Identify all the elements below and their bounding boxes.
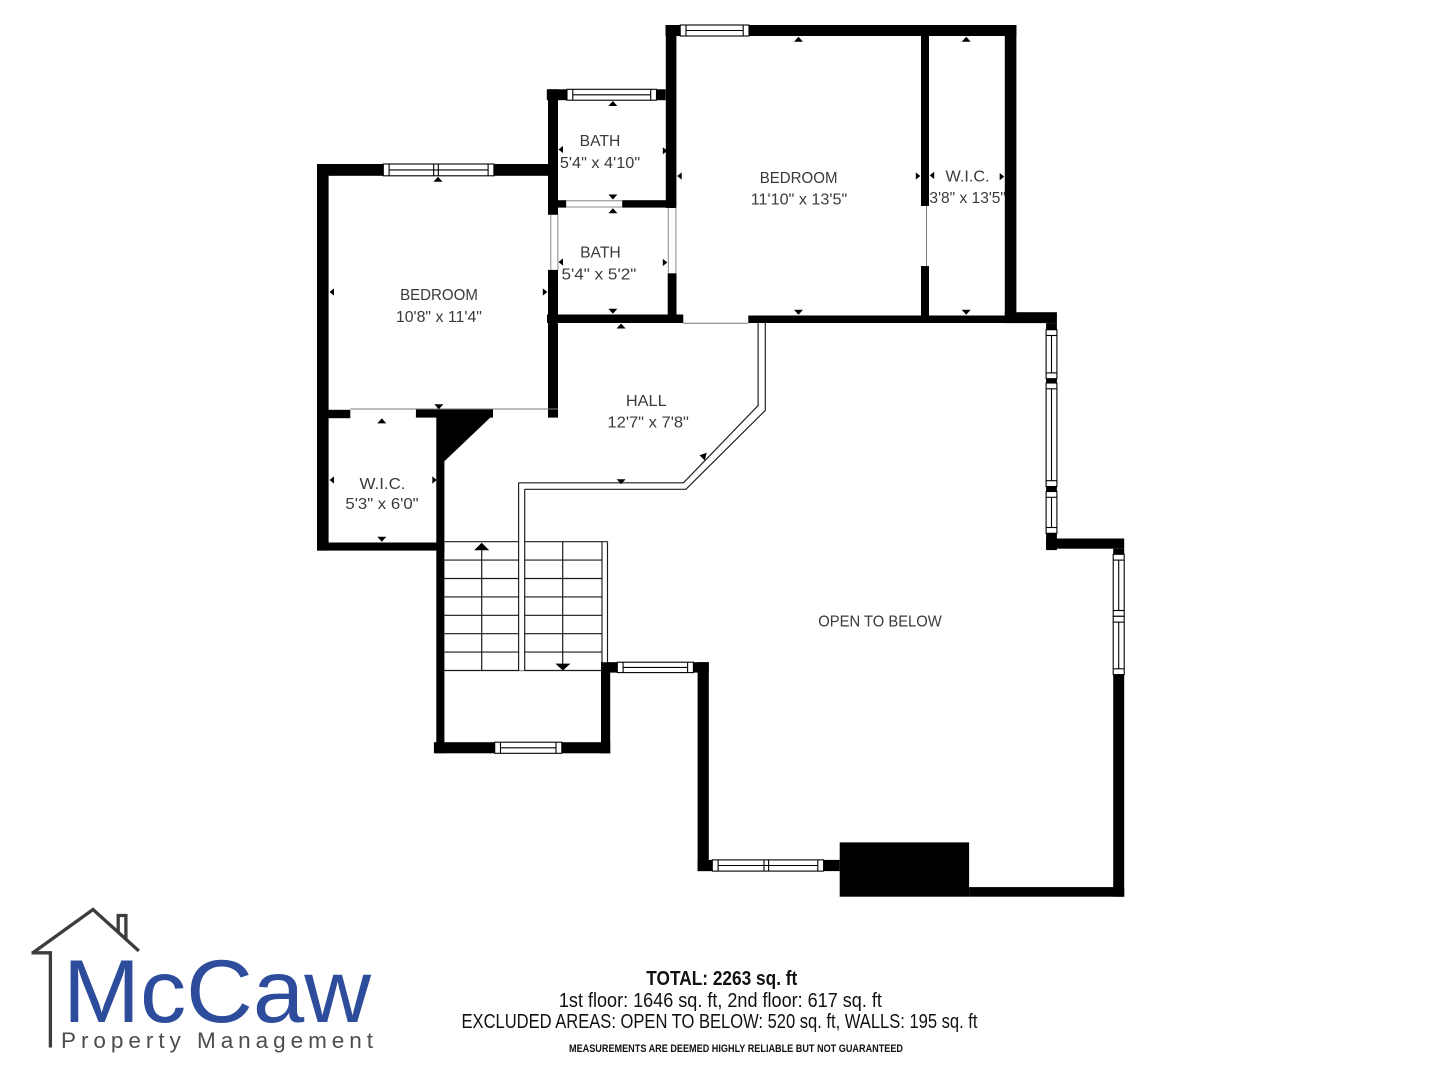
svg-text:McCaw: McCaw: [63, 941, 372, 1041]
svg-text:BATH: BATH: [580, 133, 621, 150]
svg-text:BEDROOM: BEDROOM: [400, 287, 478, 304]
svg-text:BEDROOM: BEDROOM: [760, 170, 838, 187]
svg-text:HALL: HALL: [626, 393, 667, 410]
svg-text:5'3" x 6'0": 5'3" x 6'0": [345, 496, 418, 513]
svg-text:5'4" x 5'2": 5'4" x 5'2": [562, 267, 637, 284]
svg-text:3'8" x 13'5": 3'8" x 13'5": [929, 190, 1006, 207]
svg-text:12'7" x 7'8": 12'7" x 7'8": [607, 415, 689, 432]
svg-text:OPEN TO BELOW: OPEN TO BELOW: [818, 614, 942, 631]
svg-text:MEASUREMENTS ARE DEEMED HIGHLY: MEASUREMENTS ARE DEEMED HIGHLY RELIABLE …: [569, 1043, 903, 1055]
svg-text:11'10" x 13'5": 11'10" x 13'5": [751, 192, 848, 209]
svg-text:5'4" x 4'10": 5'4" x 4'10": [560, 155, 640, 172]
svg-text:W.I.C.: W.I.C.: [946, 169, 990, 186]
svg-text:10'8" x 11'4": 10'8" x 11'4": [396, 309, 482, 326]
svg-text:EXCLUDED AREAS: OPEN TO BELOW:: EXCLUDED AREAS: OPEN TO BELOW: 520 sq. f…: [462, 1011, 978, 1033]
svg-text:BATH: BATH: [580, 244, 621, 261]
svg-text:1st floor: 1646 sq. ft, 2nd fl: 1st floor: 1646 sq. ft, 2nd floor: 617 s…: [559, 990, 882, 1012]
svg-text:W.I.C.: W.I.C.: [360, 476, 406, 493]
svg-text:TOTAL: 2263 sq. ft: TOTAL: 2263 sq. ft: [646, 968, 797, 990]
